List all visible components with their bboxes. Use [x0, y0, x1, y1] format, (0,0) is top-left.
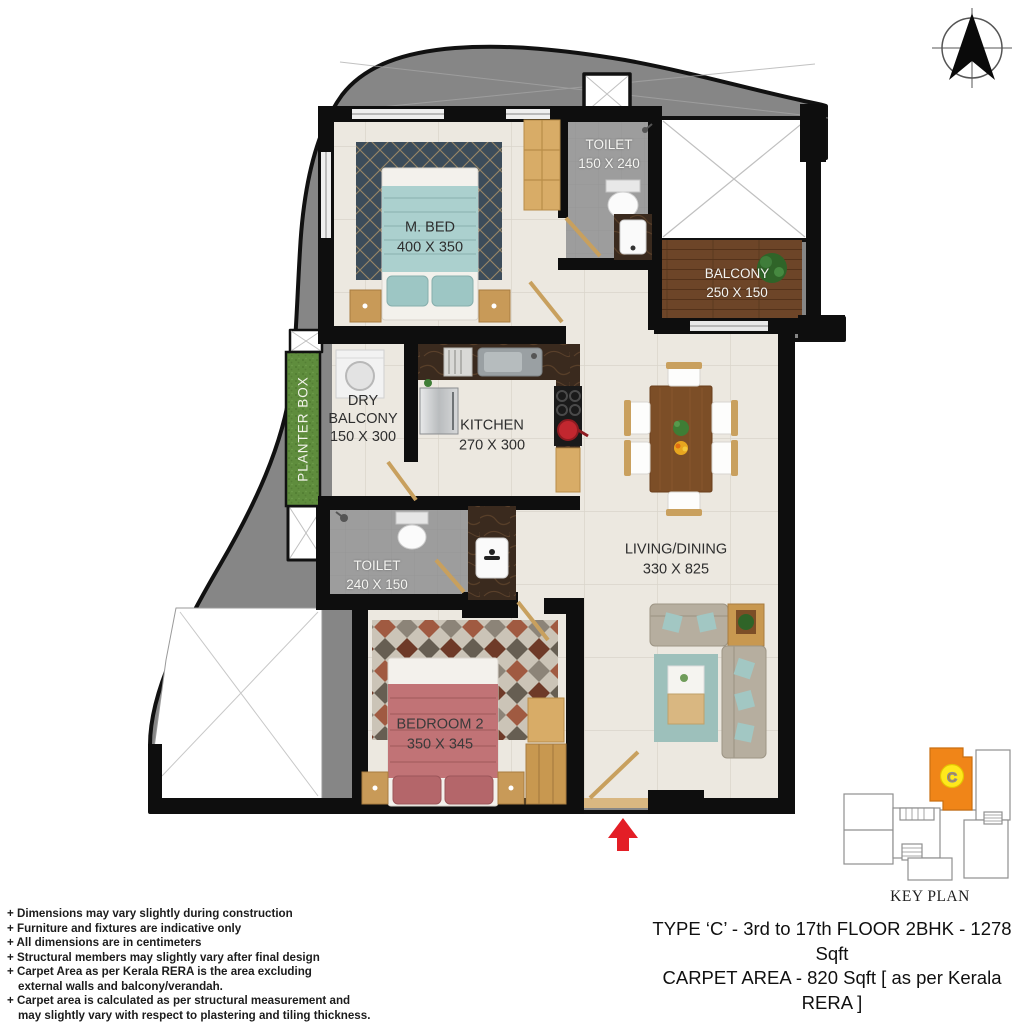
note-line: + Structural members may slightly vary a… — [7, 951, 370, 966]
room-label-planter-box: PLANTER BOX — [296, 376, 311, 482]
title-line-2: CARPET AREA - 820 Sqft [ as per Kerala R… — [642, 966, 1022, 1015]
note-line: may slightly vary with respect to plaste… — [7, 1009, 370, 1024]
disclaimer-notes: + Dimensions may vary slightly during co… — [7, 907, 370, 1023]
room-label-kitchen: KITCHEN 270 X 300 — [459, 416, 525, 457]
room-label-toilet-top: TOILET 150 X 240 — [578, 136, 640, 174]
room-label-living-dining: LIVING/DINING 330 X 825 — [625, 540, 727, 581]
entry-arrow-icon — [608, 818, 638, 851]
note-line: + Furniture and fixtures are indicative … — [7, 922, 370, 937]
note-line: + Carpet Area as per Kerala RERA is the … — [7, 965, 370, 980]
note-line: + Carpet area is calculated as per struc… — [7, 994, 370, 1009]
key-plan-caption: KEY PLAN — [890, 888, 970, 906]
floorplan-graphic: C — [0, 0, 1024, 1024]
north-arrow-icon — [932, 8, 1012, 88]
title-block: TYPE ‘C’ - 3rd to 17th FLOOR 2BHK - 1278… — [642, 917, 1022, 1015]
note-line: external walls and balcony/verandah. — [7, 980, 370, 995]
key-plan-unit-badge: C — [947, 769, 957, 785]
room-label-balcony: BALCONY 250 X 150 — [705, 265, 770, 303]
bedroom2-furniture — [362, 602, 566, 806]
room-label-m-bed: M. BED 400 X 350 — [397, 218, 463, 259]
key-plan: C — [844, 748, 1010, 880]
room-label-dry-balcony: DRY BALCONY 150 X 300 — [319, 392, 407, 446]
note-line: + Dimensions may vary slightly during co… — [7, 907, 370, 922]
floorplan-sheet: C M. BED 400 X 350 TOILET 150 X 240 BALC… — [0, 0, 1024, 1024]
title-line-1: TYPE ‘C’ - 3rd to 17th FLOOR 2BHK - 1278… — [642, 917, 1022, 966]
note-line: + All dimensions are in centimeters — [7, 936, 370, 951]
room-label-bedroom2: BEDROOM 2 350 X 345 — [396, 715, 483, 756]
room-label-toilet-common: TOILET 240 X 150 — [346, 557, 408, 595]
